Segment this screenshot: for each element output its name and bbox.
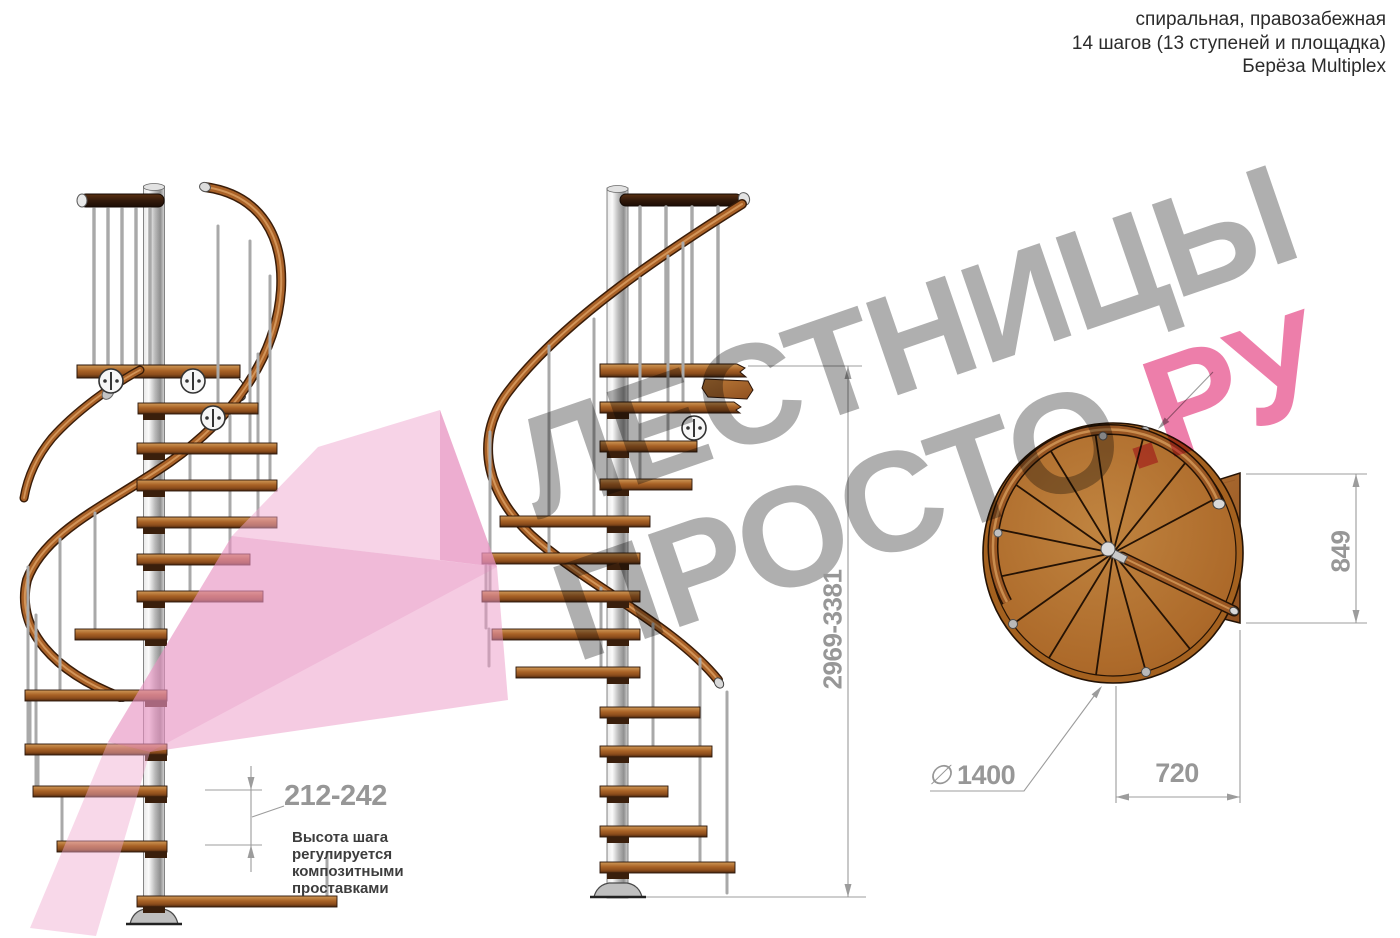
dimension-diameter: ∅1400 <box>930 760 1015 791</box>
staircase-type: спиральная, правозабежная <box>1072 8 1386 32</box>
pole-top-ball <box>1101 542 1115 556</box>
material: Берёза Multiplex <box>1072 55 1386 79</box>
diameter-symbol: ∅ <box>927 760 957 791</box>
step-height-annotation: Высота шага регулируется композитными пр… <box>292 829 404 897</box>
diameter-value: 1400 <box>957 760 1015 790</box>
dimension-platform-depth: 849 <box>1326 502 1357 602</box>
balustrade-top-rail <box>620 194 742 206</box>
pole-base-flange <box>594 883 642 897</box>
technical-drawing-page: спиральная, правозабежная 14 шагов (13 с… <box>0 0 1400 938</box>
dimension-platform-width: 720 <box>1136 758 1218 789</box>
step-count: 14 шагов (13 ступеней и площадка) <box>1072 32 1386 56</box>
balusters-top <box>94 209 150 364</box>
rail-end-cap <box>77 194 87 207</box>
balustrade-top-rail <box>80 194 164 207</box>
dimension-step-rise: 212-242 <box>284 780 387 813</box>
title-block: спиральная, правозабежная 14 шагов (13 с… <box>1072 8 1386 79</box>
handrail-end-cap <box>1213 499 1225 509</box>
dimension-total-height: 2969-3381 <box>818 550 849 710</box>
